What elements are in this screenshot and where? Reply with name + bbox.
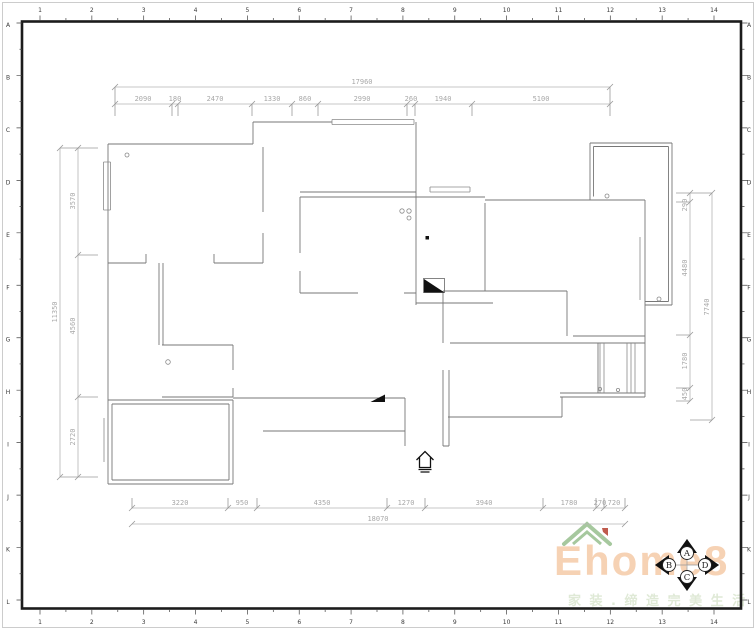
ruler-label: F xyxy=(6,284,10,291)
ruler-label: D xyxy=(747,179,752,186)
ruler-label: 7 xyxy=(349,7,353,14)
dimension-label: 3220 xyxy=(172,499,189,507)
ruler-label: 4 xyxy=(194,7,198,14)
cad-floor-plan-viewport: Ehome8 家 装 . 缔 造 完 美 生 活 123456789101112… xyxy=(0,0,756,630)
compass-icon: A B C D xyxy=(655,539,719,591)
door-swing-icon xyxy=(424,279,445,293)
ruler-label: 13 xyxy=(658,7,666,14)
ruler-label: B xyxy=(747,74,751,81)
ruler-rows-left: ABCDEFGHIJKL xyxy=(6,22,11,606)
ruler-columns-bottom: 1234567891011121314 xyxy=(38,619,718,626)
dim-left-segments: 357045602720 xyxy=(69,193,77,446)
ruler-label: E xyxy=(747,232,751,239)
dimension-label: 2990 xyxy=(354,95,371,103)
ruler-label: G xyxy=(6,337,11,344)
ruler-label: 6 xyxy=(297,7,301,14)
ruler-label: 14 xyxy=(710,7,718,14)
ruler-label: L xyxy=(6,599,10,606)
walls xyxy=(104,120,673,485)
dimension-label: 950 xyxy=(236,499,249,507)
dim-bottom-segments: 32209504350127039401780270720 xyxy=(172,499,621,507)
dimension-label: 2090 xyxy=(135,95,152,103)
dimension-label: 4480 xyxy=(681,260,689,277)
ruler-label: C xyxy=(747,127,751,134)
dimension-label: 2720 xyxy=(69,429,77,446)
compass-south-label: C xyxy=(684,573,691,583)
ruler-label: K xyxy=(6,547,11,554)
dimension-label: 3570 xyxy=(69,193,77,210)
ruler-label: 8 xyxy=(401,7,405,14)
ruler-label: 5 xyxy=(245,7,249,14)
ruler-label: J xyxy=(747,494,750,501)
fixture-circles xyxy=(125,153,661,392)
ruler-label: F xyxy=(747,284,751,291)
ruler-label: L xyxy=(747,599,751,606)
floor-plan-drawing: 1234567891011121314 1234567891011121314 … xyxy=(0,0,756,630)
ruler-label: 11 xyxy=(555,619,563,626)
dimension-label: 5100 xyxy=(533,95,550,103)
dimension-label: 450 xyxy=(681,388,689,401)
ruler-label: 3 xyxy=(142,7,146,14)
door-symbols xyxy=(371,236,445,472)
ruler-label: 5 xyxy=(245,619,249,626)
ruler-label: H xyxy=(747,389,752,396)
ruler-label: J xyxy=(6,494,9,501)
ruler-label: 8 xyxy=(401,619,405,626)
main-walls xyxy=(108,122,645,446)
ruler-label: 3 xyxy=(142,619,146,626)
ruler-columns-top: 1234567891011121314 xyxy=(38,7,718,14)
dimension-label: 720 xyxy=(608,499,621,507)
compass-east-label: D xyxy=(702,561,709,571)
dimension-label: 2470 xyxy=(207,95,224,103)
ruler-ticks xyxy=(17,16,748,615)
ruler-label: 1 xyxy=(38,7,42,14)
ruler-label: K xyxy=(747,547,752,554)
dimension-label: 1780 xyxy=(681,353,689,370)
dim-totals: 17960 18070 11350 7740 xyxy=(51,78,711,523)
dimension-label: 1330 xyxy=(264,95,281,103)
ruler-label: I xyxy=(7,442,9,449)
ruler-label: 11 xyxy=(555,7,563,14)
ruler-label: B xyxy=(6,74,10,81)
dim-bottom-total: 18070 xyxy=(367,515,388,523)
dimension-tick-marks xyxy=(57,84,715,527)
ruler-label: I xyxy=(748,442,750,449)
dimension-label: 260 xyxy=(405,95,418,103)
ruler-label: E xyxy=(6,232,10,239)
dim-right-segments: 29044801780450 xyxy=(681,199,689,401)
dimension-label: 180 xyxy=(169,95,182,103)
ruler-label: 14 xyxy=(710,619,718,626)
ruler-label: 4 xyxy=(194,619,198,626)
double-walls xyxy=(108,143,672,484)
ruler-label: 2 xyxy=(90,619,94,626)
ruler-rows-right: ABCDEFGHIJKL xyxy=(747,22,752,606)
dim-left-total: 11350 xyxy=(51,301,59,322)
entry-door-icon xyxy=(417,452,434,473)
ruler-label: 10 xyxy=(503,7,511,14)
dimension-label: 4350 xyxy=(314,499,331,507)
ruler-label: 6 xyxy=(297,619,301,626)
dim-top-total: 17960 xyxy=(351,78,372,86)
dimension-label: 1270 xyxy=(398,499,415,507)
dimension-label: 4560 xyxy=(69,318,77,335)
ruler-label: H xyxy=(6,389,11,396)
dimension-label: 1780 xyxy=(561,499,578,507)
ruler-label: 9 xyxy=(453,619,457,626)
ruler-label: 9 xyxy=(453,7,457,14)
ruler-label: D xyxy=(6,179,11,186)
ruler-label: 1 xyxy=(38,619,42,626)
ruler-label: C xyxy=(6,127,10,134)
dimension-label: 290 xyxy=(681,199,689,212)
dim-right-total: 7740 xyxy=(703,299,711,316)
dimension-label: 270 xyxy=(594,499,607,507)
compass-north-label: A xyxy=(683,549,691,559)
compass-west-label: B xyxy=(666,561,672,571)
dimension-label: 860 xyxy=(299,95,312,103)
dimension-label: 3940 xyxy=(476,499,493,507)
dimension-chain-lines xyxy=(60,87,712,524)
ruler-label: 10 xyxy=(503,619,511,626)
ruler-label: A xyxy=(747,22,752,29)
ruler-label: G xyxy=(747,337,752,344)
ruler-label: 7 xyxy=(349,619,353,626)
dimension-label: 1940 xyxy=(435,95,452,103)
dimension-lines xyxy=(57,84,715,527)
dim-top-segments: 209018024701330860299026019405100 xyxy=(135,95,550,103)
ruler-label: 13 xyxy=(658,619,666,626)
ruler-label: A xyxy=(6,22,11,29)
wall-dot xyxy=(426,236,430,240)
ruler-label: 12 xyxy=(606,7,614,14)
ruler-label: 2 xyxy=(90,7,94,14)
ruler-label: 12 xyxy=(606,619,614,626)
